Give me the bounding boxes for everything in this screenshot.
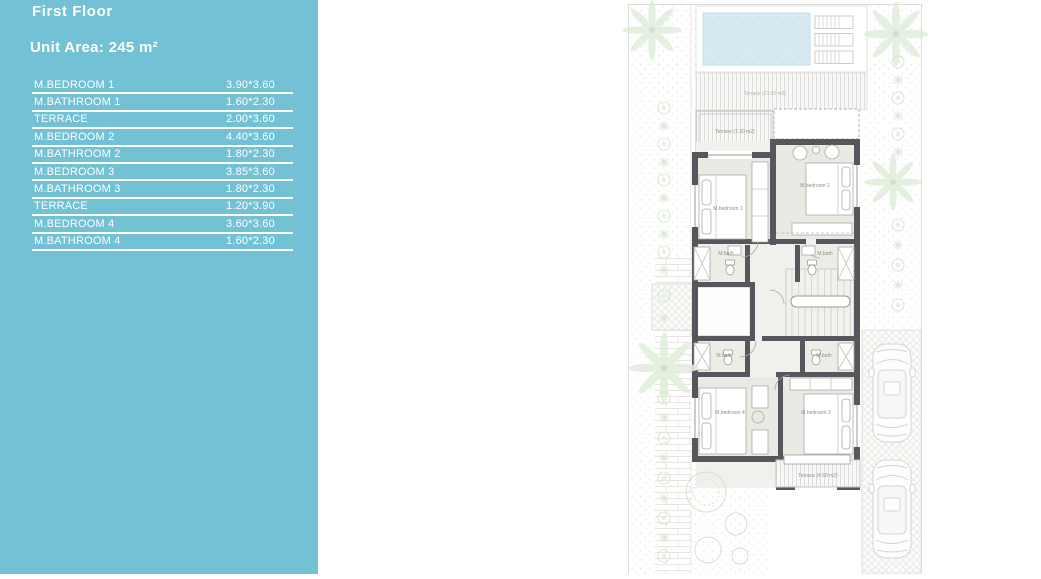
room-size: 1.60*2.30 [226, 96, 275, 108]
table-row: TERRACE2.00*3.60 [32, 112, 293, 129]
car [869, 460, 915, 558]
table-row: M.BEDROOM 13.90*3.60 [32, 77, 293, 94]
room-label: M.BATHROOM 4 [32, 235, 226, 247]
room-size: 3.85*3.60 [226, 166, 275, 178]
wardrobe-3 [790, 378, 852, 390]
area-table: M.BEDROOM 13.90*3.60 M.BATHROOM 11.60*2.… [32, 77, 293, 251]
table-row: M.BEDROOM 33.85*3.60 [32, 164, 293, 181]
bedroom-4-label: M.bedroom 4 [715, 410, 745, 416]
room-size: 1.60*2.30 [226, 235, 275, 247]
room-size: 4.40*3.60 [226, 131, 275, 143]
palm-tree [864, 153, 921, 210]
table-row: M.BATHROOM 21.80*2.30 [32, 147, 293, 164]
bath-1-label: M.bath [718, 251, 734, 257]
unit-area-label: Unit Area: 245 m² [30, 39, 158, 56]
void [692, 287, 750, 336]
page-title: First Floor [32, 3, 113, 20]
room-size: 1.80*2.30 [226, 183, 275, 195]
room-size: 2.00*3.60 [226, 113, 275, 125]
cabinet [752, 430, 768, 454]
floor-plan-area: Terrace (23.00 m2) Terrace (7.20 m2) [600, 0, 1041, 574]
table-row: M.BATHROOM 31.80*2.30 [32, 181, 293, 198]
room-size: 1.20*3.90 [226, 200, 275, 212]
room-label: M.BEDROOM 2 [32, 131, 226, 143]
wardrobe-1 [752, 162, 768, 242]
room-label: M.BEDROOM 3 [32, 166, 226, 178]
room-label: M.BEDROOM 1 [32, 79, 226, 91]
room-size: 3.90*3.60 [226, 79, 275, 91]
bed-2 [806, 163, 853, 215]
terrace-bottom-label: Terrace (4.68 m2) [798, 473, 838, 479]
table-row: M.BATHROOM 41.60*2.30 [32, 234, 293, 251]
bath-2-label: M.bath [817, 251, 833, 257]
table-row: M.BEDROOM 43.60*3.60 [32, 216, 293, 233]
room-label: TERRACE [32, 200, 226, 212]
bedroom-2-label: M.bedroom 2 [800, 183, 830, 189]
lounge-chairs [815, 16, 853, 64]
house: Terrace (4.68 m2) [691, 139, 861, 491]
terrace-left-label: Terrace (7.20 m2) [715, 129, 755, 135]
stair-handrail [791, 296, 850, 307]
bedroom-1-label: M.bedroom 1 [713, 206, 743, 212]
bed-3 [804, 394, 853, 454]
roof-overhang-dashed [774, 109, 859, 139]
palm-tree [629, 333, 699, 403]
room-label: TERRACE [32, 113, 226, 125]
bath-3-label: M.bath [716, 353, 732, 359]
room-size: 3.60*3.60 [226, 218, 275, 230]
palm-tree [622, 0, 682, 60]
table-row: M.BATHROOM 11.60*2.30 [32, 94, 293, 111]
terrace-top: Terrace (23.00 m2) [696, 73, 867, 110]
terrace-bottom: Terrace (4.68 m2) [776, 455, 860, 487]
bath-4-label: M.bath [816, 353, 832, 359]
pool-deck [696, 6, 867, 72]
room-label: M.BATHROOM 3 [32, 183, 226, 195]
car [869, 344, 915, 442]
bed-4 [699, 388, 746, 454]
room-label: M.BATHROOM 1 [32, 96, 226, 108]
table-row: M.BEDROOM 24.40*3.60 [32, 129, 293, 146]
room-label: M.BATHROOM 2 [32, 148, 226, 160]
bedroom-3-label: M.bedroom 3 [801, 410, 831, 416]
room-label: M.BEDROOM 4 [32, 218, 226, 230]
sidebar: First Floor Unit Area: 245 m² M.BEDROOM … [0, 0, 318, 574]
room-size: 1.80*2.30 [226, 148, 275, 160]
terrace-top-label: Terrace (23.00 m2) [744, 91, 787, 97]
floor-plan: Terrace (23.00 m2) Terrace (7.20 m2) [600, 0, 1041, 574]
cabinet [752, 386, 768, 408]
sink [802, 246, 815, 255]
table-row: TERRACE1.20*3.90 [32, 199, 293, 216]
